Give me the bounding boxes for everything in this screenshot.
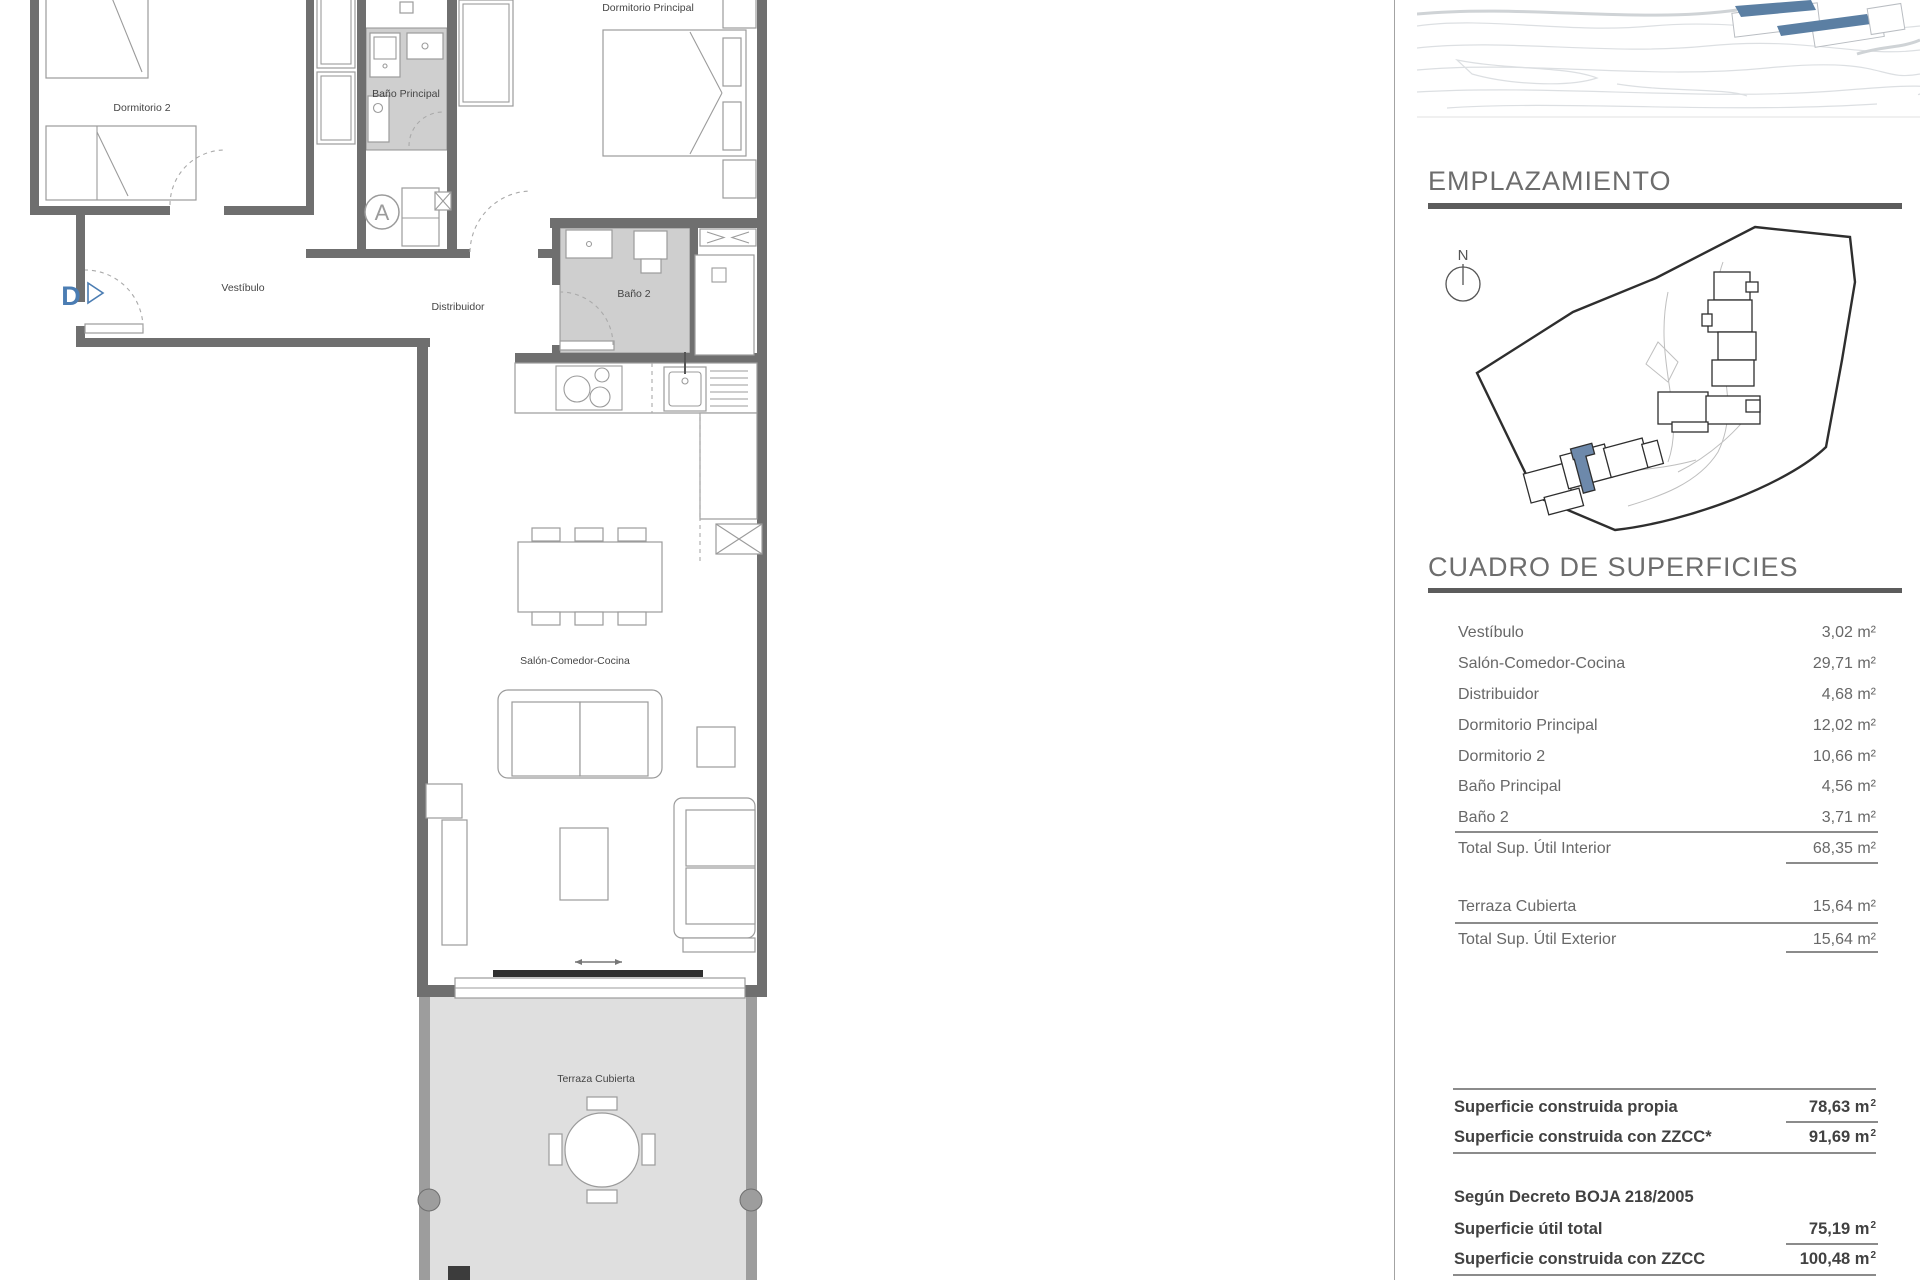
summary-row: Superficie construida propia 78,63 m2 [1428, 1092, 1878, 1122]
table-row: Baño 2 3,71 m² [1428, 803, 1878, 834]
table-row: Distribuidor 4,68 m² [1428, 680, 1878, 711]
row-label: Dormitorio Principal [1458, 717, 1598, 735]
table-row: Dormitorio Principal 12,02 m² [1428, 710, 1878, 741]
buildings [1732, 0, 1905, 47]
row-value: 4,68 m² [1822, 686, 1876, 704]
summary-label: Superficie construida con ZZCC* [1454, 1128, 1712, 1147]
label-bano-principal: Baño Principal [372, 88, 440, 100]
summary-top-line [1453, 1088, 1876, 1090]
wall-stub [448, 1266, 470, 1280]
table-row: Terraza Cubierta 15,64 m² [1428, 892, 1878, 923]
aerial-render [1417, 0, 1920, 118]
entrance-letter: D [61, 281, 81, 311]
label-salon: Salón-Comedor-Cocina [520, 655, 630, 667]
row-value: 15,64 m² [1813, 898, 1876, 916]
summary-row: Superficie útil total 75,19 m2 [1428, 1214, 1878, 1244]
label-dormitorio-principal: Dormitorio Principal [602, 2, 694, 14]
summary-label: Superficie construida propia [1454, 1098, 1678, 1117]
vertical-divider [1394, 0, 1395, 1280]
total-label: Total Sup. Útil Exterior [1458, 931, 1616, 949]
entrance-door [85, 270, 143, 333]
decree-underline [1786, 1243, 1878, 1245]
exterior-table: Terraza Cubierta 15,64 m² [1428, 892, 1878, 923]
emplazamiento-title: EMPLAZAMIENTO [1428, 166, 1902, 198]
summary-value: 100,48 m [1800, 1250, 1870, 1268]
fridge-column [695, 255, 754, 355]
summary-value: 75,19 m [1809, 1220, 1870, 1238]
summary-value: 78,63 m [1809, 1098, 1870, 1116]
row-value: 3,02 m² [1822, 624, 1876, 642]
superficies-title: CUADRO DE SUPERFICIES [1428, 552, 1902, 584]
entrance-direction-icon [88, 283, 103, 303]
surface-table: Vestíbulo 3,02 m² Salón-Comedor-Cocina 2… [1428, 618, 1878, 834]
row-label: Terraza Cubierta [1458, 898, 1576, 916]
row-label: Distribuidor [1458, 686, 1539, 704]
row-value: 12,02 m² [1813, 717, 1876, 735]
decree-bottom-line [1453, 1274, 1876, 1276]
label-vestibulo: Vestíbulo [221, 282, 264, 294]
summary-underline [1786, 1121, 1878, 1123]
master-bedroom-furniture [459, 0, 756, 198]
north-label: N [1458, 247, 1469, 264]
label-dormitorio-2: Dormitorio 2 [113, 102, 170, 114]
total-underline [1786, 862, 1878, 864]
total-value: 68,35 m² [1813, 840, 1876, 858]
summary-value: 91,69 m [1809, 1128, 1870, 1146]
label-distribuidor: Distribuidor [431, 301, 485, 313]
table-separator [1455, 922, 1878, 924]
table-row: Baño Principal 4,56 m² [1428, 772, 1878, 803]
closet-symbol [700, 229, 756, 246]
row-value: 29,71 m² [1813, 655, 1876, 673]
terrace-sliding-door [455, 959, 745, 998]
core-letter: A [375, 200, 390, 225]
north-compass-icon: N [1446, 247, 1480, 301]
superficies-underline [1428, 588, 1902, 593]
row-label: Baño 2 [1458, 809, 1509, 827]
floor-plan: A D [0, 0, 790, 1280]
sup-2: 2 [1870, 1220, 1876, 1231]
table-row: Salón-Comedor-Cocina 29,71 m² [1428, 649, 1878, 680]
living-room-furniture [426, 528, 755, 952]
summary-label: Superficie útil total [1454, 1220, 1603, 1239]
label-terraza: Terraza Cubierta [557, 1073, 635, 1085]
door-arc-master [470, 191, 531, 252]
sup-2: 2 [1870, 1098, 1876, 1109]
site-buildings [1520, 272, 1760, 518]
total-underline [1786, 951, 1878, 953]
summary-bottom-line [1453, 1152, 1876, 1154]
site-plan: N [1428, 222, 1902, 544]
total-value: 15,64 m² [1813, 931, 1876, 949]
row-value: 4,56 m² [1822, 778, 1876, 796]
sup-2: 2 [1870, 1128, 1876, 1139]
stair-core-marker: A [365, 188, 451, 246]
table-separator [1455, 831, 1878, 833]
row-value: 10,66 m² [1813, 748, 1876, 766]
label-bano-2: Baño 2 [617, 288, 650, 300]
floor-plan-drawing: A D [0, 0, 790, 1280]
decree-title: Según Decreto BOJA 218/2005 [1454, 1188, 1694, 1207]
total-label: Total Sup. Útil Interior [1458, 840, 1611, 858]
emplazamiento-underline [1428, 203, 1902, 209]
bedroom2-furniture [46, 0, 196, 200]
sup-2: 2 [1870, 1250, 1876, 1261]
table-row: Vestíbulo 3,02 m² [1428, 618, 1878, 649]
row-label: Baño Principal [1458, 778, 1561, 796]
table-row: Dormitorio 2 10,66 m² [1428, 741, 1878, 772]
row-label: Vestíbulo [1458, 624, 1524, 642]
wardrobe-1 [317, 0, 355, 144]
summary-label: Superficie construida con ZZCC [1454, 1250, 1705, 1269]
interior-total-row: Total Sup. Útil Interior 68,35 m² [1428, 834, 1878, 865]
row-value: 3,71 m² [1822, 809, 1876, 827]
summary-row: Superficie construida con ZZCC* 91,69 m2 [1428, 1122, 1878, 1152]
row-label: Dormitorio 2 [1458, 748, 1545, 766]
row-label: Salón-Comedor-Cocina [1458, 655, 1625, 673]
summary-row: Superficie construida con ZZCC 100,48 m2 [1428, 1244, 1878, 1274]
